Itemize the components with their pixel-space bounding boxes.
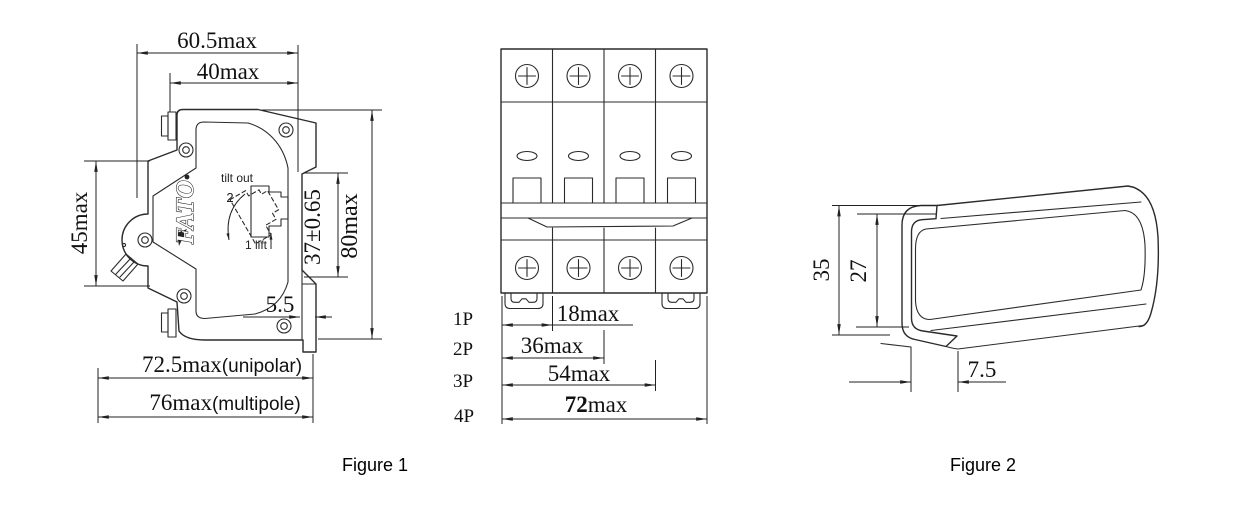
figure2-din-rail: 35 27 7.5 Figure 2 — [809, 186, 1158, 475]
screw-icon — [670, 257, 693, 280]
screw-icon — [670, 65, 693, 88]
dim-4p-suffix: max — [588, 392, 628, 417]
dim-rail-height-outer-label: 35 — [809, 259, 834, 282]
pole-label-1p: 1P — [453, 309, 473, 330]
front-view-dimensions: 1P 18max 2P 36max 3P 54max 4P 72max — [453, 296, 707, 427]
lever-pivot-dot — [122, 243, 125, 246]
rivet-bottom-right — [277, 319, 291, 333]
dim-2p-label: 36max — [521, 333, 584, 358]
dim-rail-height-inner: 27 — [846, 214, 877, 327]
figure1-caption: Figure 1 — [342, 455, 408, 475]
bottom-clip-left — [505, 294, 543, 309]
dim-width-total-label: 60.5max — [177, 28, 257, 53]
screw-icon — [567, 257, 590, 280]
terminal-block-top — [162, 112, 177, 140]
screw-icon — [567, 65, 590, 88]
dim-rail-depth: 7.5 — [849, 357, 1006, 382]
logo-registered-dot — [185, 175, 190, 180]
rail-inner-panel — [916, 211, 1146, 320]
brand-logo-text: FATO — [172, 180, 199, 246]
screw-icon — [516, 257, 539, 280]
figure2-dimensions: 35 27 7.5 — [809, 206, 1006, 393]
pole-label-4p: 4P — [454, 406, 474, 427]
dim-depth-multipole-value: 76max — [149, 390, 212, 415]
dim-3p-label: 54max — [548, 361, 611, 386]
dim-2p: 2P 36max — [453, 333, 604, 360]
terminal-block-bottom — [162, 309, 177, 337]
screw-icon — [619, 257, 642, 280]
tilt-out-diagram: tilt out 2 1 lift — [221, 171, 288, 252]
toggle-lever — [111, 243, 138, 281]
screw-icon — [619, 65, 642, 88]
dim-width-body-label: 40max — [197, 59, 260, 84]
dim-rail-height-outer: 35 — [809, 206, 839, 336]
dim-width-total: 60.5max — [137, 28, 298, 53]
pole-label-2p: 2P — [453, 339, 473, 360]
dim-rail-depth-label: 7.5 — [968, 357, 997, 382]
lift-step-1: 1 lift — [245, 238, 268, 252]
bottom-clip-right — [662, 294, 700, 309]
dim-4p: 4P 72max — [454, 392, 707, 427]
rivet-lever-boss — [138, 233, 152, 247]
figure1-side-view: FATO tilt out 2 1 lift — [67, 28, 408, 475]
dim-4p-label: 72max — [565, 392, 628, 417]
dim-1p-label: 18max — [557, 301, 620, 326]
dim-3p: 3P 54max — [453, 361, 656, 392]
dim-depth-unipolar: 72.5max(unipolar) — [98, 352, 313, 378]
figure1-dimensions: 60.5max 40max 45max 80max 37±0.65 — [67, 28, 382, 423]
dim-depth-unipolar-label: 72.5max(unipolar) — [142, 352, 302, 377]
dim-depth-multipole-label: 76max(multipole) — [149, 390, 300, 415]
rail-body — [881, 186, 1158, 349]
dim-depth-unipolar-value: 72.5max — [142, 352, 222, 377]
mini-clip-dashed — [230, 181, 288, 244]
dim-latch-depth-label: 5.5 — [266, 292, 295, 317]
dim-width-body: 40max — [170, 59, 298, 84]
dim-height-left-label: 45max — [67, 191, 92, 254]
screw-icon — [516, 65, 539, 88]
pole-label-3p: 3P — [453, 371, 473, 392]
tilt-step-2: 2 — [226, 190, 233, 205]
front-view-4pole: 1P 18max 2P 36max 3P 54max 4P 72max — [453, 49, 707, 427]
dim-height-left: 45max — [67, 161, 96, 286]
rivet-top-right — [279, 123, 293, 137]
tilt-out-label: tilt out — [221, 171, 254, 185]
dim-rail-slot: 37±0.65 — [300, 173, 338, 277]
dim-depth-unipolar-note: (unipolar) — [222, 356, 302, 377]
dimension-drawing: FATO tilt out 2 1 lift — [0, 0, 1244, 516]
technical-drawing-canvas: FATO tilt out 2 1 lift — [0, 0, 1244, 516]
dim-depth-multipole: 76max(multipole) — [98, 390, 313, 417]
dim-rail-height-inner-label: 27 — [846, 260, 871, 283]
rivet-top-left — [179, 143, 193, 157]
figure2-caption: Figure 2 — [950, 455, 1016, 475]
rivet-bottom-left — [177, 289, 191, 303]
dim-depth-multipole-note: (multipole) — [212, 394, 301, 415]
dim-rail-slot-label: 37±0.65 — [300, 189, 325, 265]
brand-logo: FATO — [172, 175, 199, 246]
handle-groove — [528, 218, 692, 227]
dim-4p-value: 72 — [565, 392, 588, 417]
dim-height-total: 80max — [337, 110, 372, 339]
dim-height-total-label: 80max — [337, 193, 363, 258]
